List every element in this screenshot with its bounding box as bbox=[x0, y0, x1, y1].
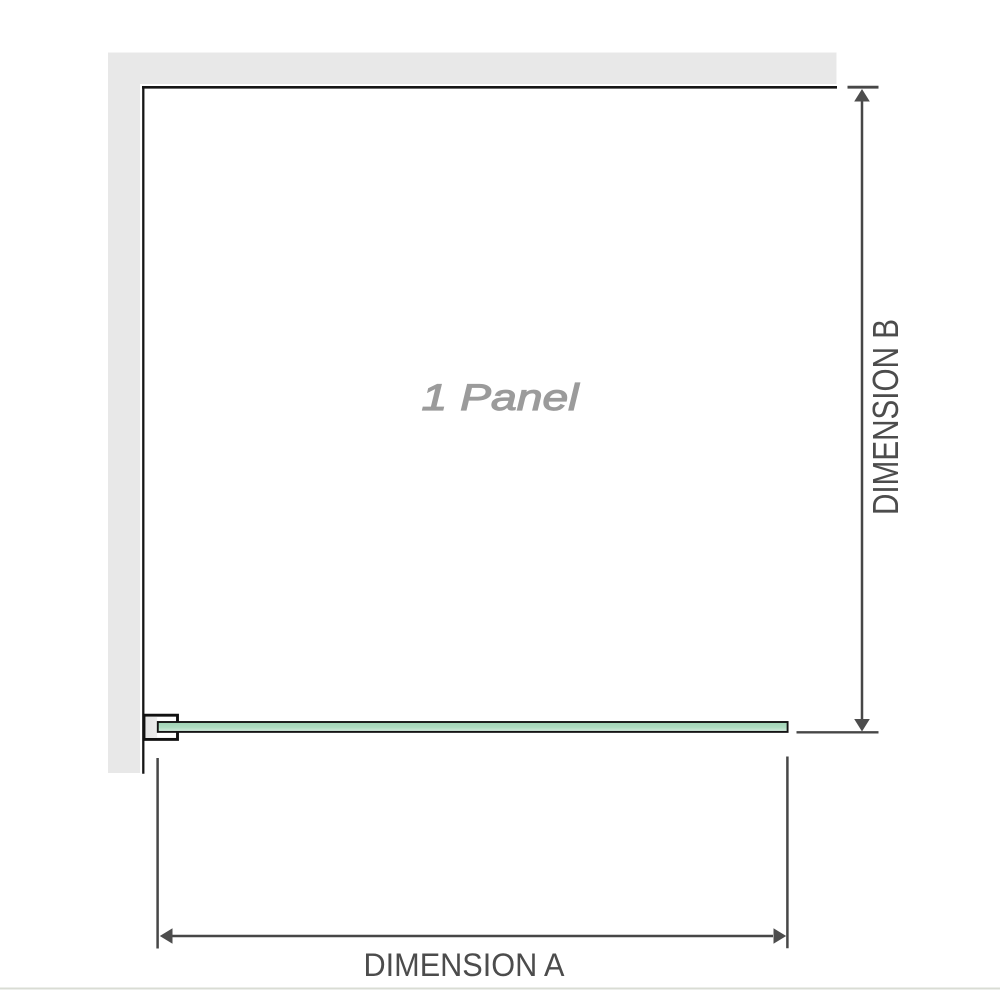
svg-text:DIMENSION B: DIMENSION B bbox=[865, 319, 906, 515]
svg-text:DIMENSION A: DIMENSION A bbox=[364, 947, 566, 983]
svg-text:1 Panel: 1 Panel bbox=[422, 377, 581, 418]
